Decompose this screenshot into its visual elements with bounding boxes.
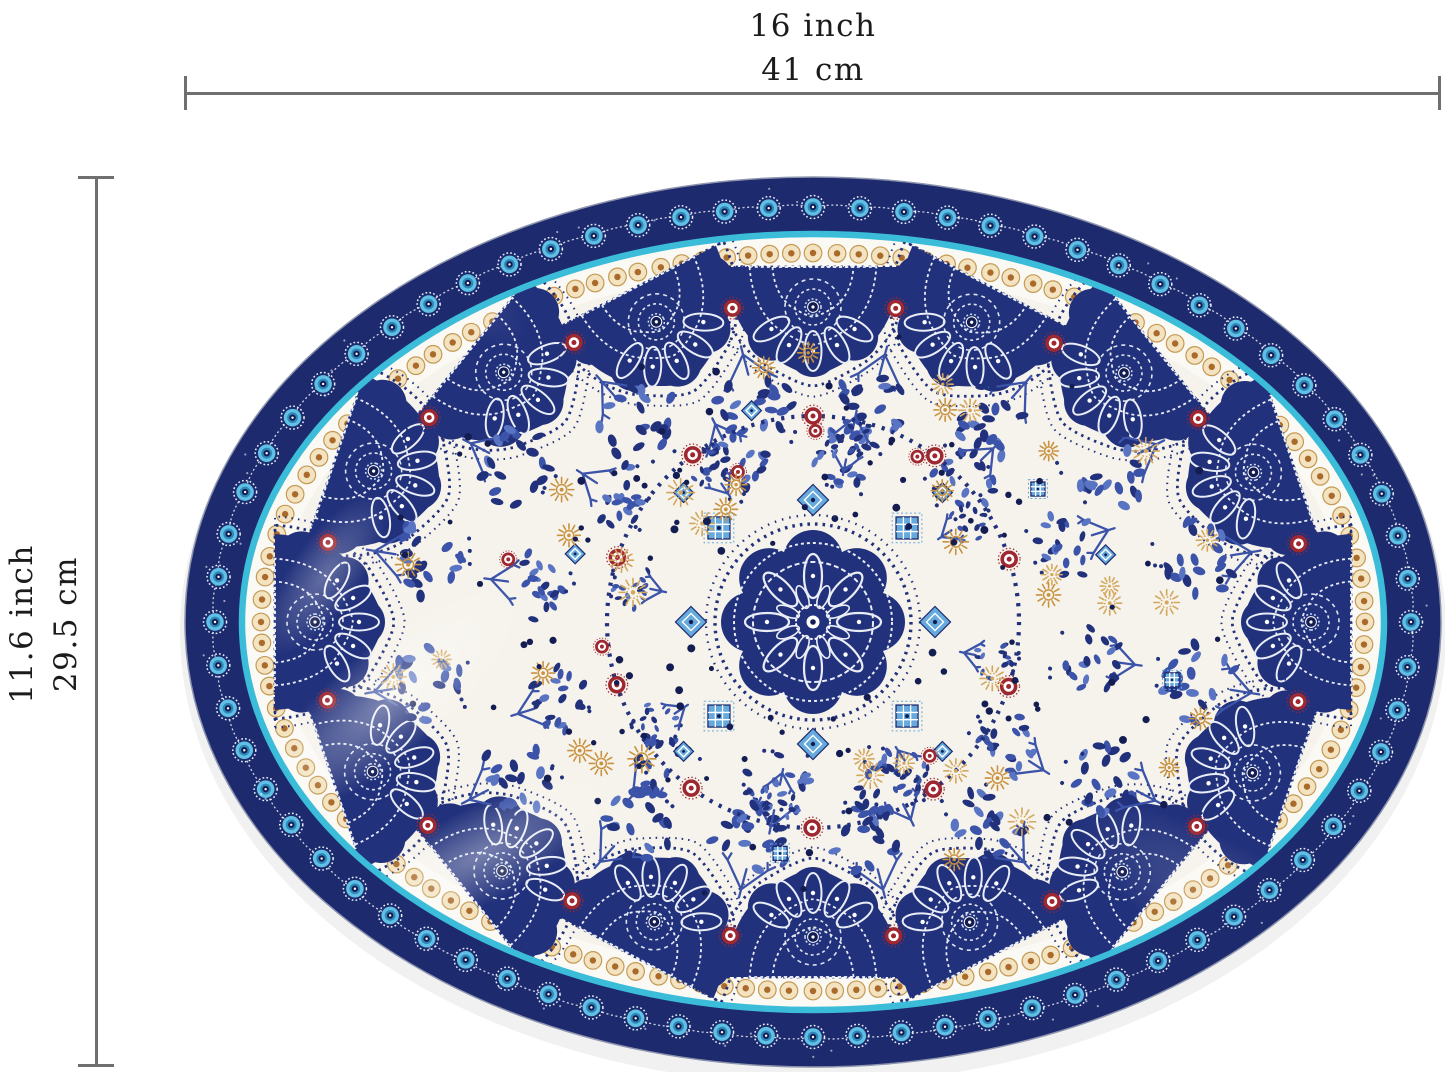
product-image: 16 inch 41 cm 11.6 inch 29.5 cm — [0, 0, 1445, 1072]
width-cm-label: 41 cm — [749, 48, 876, 92]
height-measure-cap-bottom — [78, 1064, 114, 1067]
oval-platter — [0, 0, 1445, 1072]
height-measure-line — [95, 177, 98, 1066]
width-dimension-label: 16 inch 41 cm — [749, 4, 876, 92]
width-measure-cap-left — [184, 76, 187, 110]
height-inch-label: 11.6 inch — [0, 474, 44, 774]
height-cm-label: 29.5 cm — [44, 474, 88, 774]
height-dimension-label: 11.6 inch 29.5 cm — [0, 474, 92, 774]
width-measure-line — [185, 92, 1440, 95]
width-measure-cap-right — [1438, 76, 1441, 110]
width-inch-label: 16 inch — [749, 4, 876, 48]
height-measure-cap-top — [78, 176, 114, 179]
